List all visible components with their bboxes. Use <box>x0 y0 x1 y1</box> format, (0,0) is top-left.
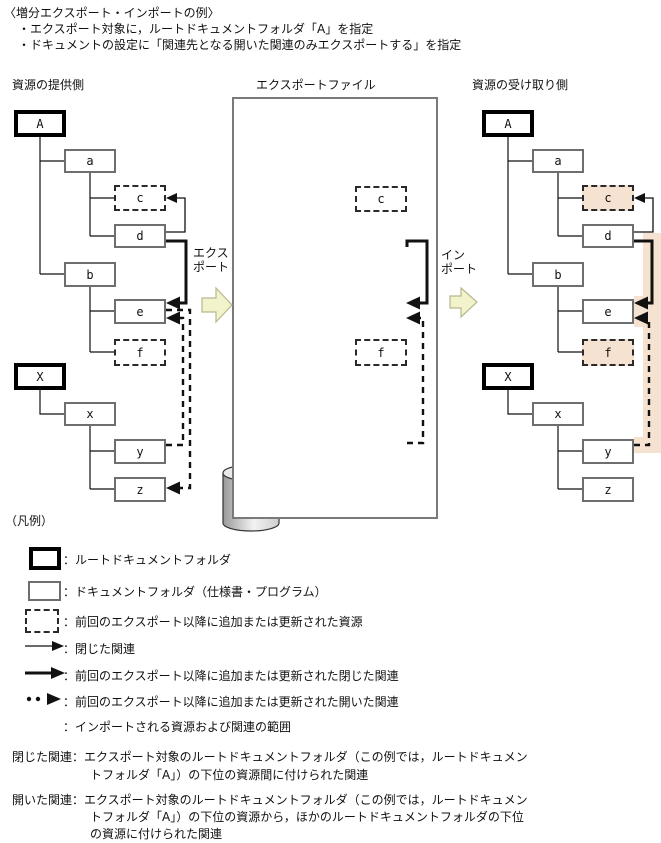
node-provider-z: z <box>114 477 166 502</box>
provider-new-open-relation-e-z <box>166 310 190 495</box>
provider-new-closed-relation-d-e <box>166 241 186 310</box>
closed-relation-note-line: トフォルダ「A」）の下位の資源間に付けられた関連 <box>90 766 368 783</box>
node-provider-e: e <box>114 299 166 324</box>
open-relation-note-line: の資源に付けられた関連 <box>90 825 222 842</box>
node-receiver-x: x <box>532 402 584 426</box>
node-receiver-b: b <box>532 262 584 287</box>
node-provider-c: c <box>114 185 166 211</box>
export-file-box <box>233 98 437 518</box>
provider-connector-b <box>90 287 114 352</box>
node-receiver-d: d <box>582 224 634 248</box>
import-label-line2: ポート <box>441 262 477 276</box>
receiver-connector-X <box>508 390 532 414</box>
legend-added-open-relation-arrow <box>24 691 66 707</box>
node-provider-a: a <box>64 149 116 173</box>
provider-new-open-relation-y-e <box>166 312 183 446</box>
node-provider-b: b <box>64 262 116 287</box>
provider-connector-x <box>90 426 114 489</box>
legend-import-scope-swatch <box>28 714 49 735</box>
node-provider-y: y <box>114 439 166 464</box>
legend-added-updated-resource-box <box>25 609 59 633</box>
receiver-connector-b <box>558 287 582 352</box>
legend-heading: （凡例） <box>5 514 53 529</box>
export-label-line1: エクス <box>193 246 229 260</box>
open-relation-note-term: 開いた関連： <box>12 791 84 808</box>
node-receiver-c: c <box>582 185 634 211</box>
legend-item-label: ：前回のエクスポート以降に追加または更新された資源 <box>63 613 363 630</box>
provider-connector-X <box>40 390 64 414</box>
legend-root-folder-box <box>29 547 61 570</box>
node-provider-X: X <box>14 363 66 390</box>
node-provider-x: x <box>64 402 116 426</box>
open-relation-note-line: トフォルダ「A」）の下位の資源から，ほかのルートドキュメントフォルダの下位 <box>90 808 524 825</box>
figure-canvas: 〈増分エクスポート・インポートの例〉 ・エクスポート対象に，ルートドキュメントフ… <box>0 0 661 843</box>
node-receiver-X: X <box>482 363 534 390</box>
node-receiver-y: y <box>582 439 634 464</box>
node-receiver-A: A <box>482 110 534 137</box>
legend-item-label: ：前回のエクスポート以降に追加または更新された開いた関連 <box>63 693 399 710</box>
node-receiver-a: a <box>532 149 584 173</box>
legend-item-label: ：前回のエクスポート以降に追加または更新された閉じた関連 <box>63 667 399 684</box>
node-provider-A: A <box>14 110 66 137</box>
node-exportfile-f: f <box>355 339 407 366</box>
node-provider-f: f <box>114 339 166 366</box>
node-exportfile-c: c <box>355 186 407 212</box>
node-receiver-z: z <box>582 477 634 502</box>
open-relation-note-line: エクスポート対象のルートドキュメントフォルダ（この例では，ルートドキュメン <box>84 791 528 808</box>
receiver-connector-A <box>508 136 532 274</box>
receiver-closed-relation-d-c <box>634 193 653 232</box>
closed-relation-note-line: エクスポート対象のルートドキュメントフォルダ（この例では，ルートドキュメン <box>84 748 528 765</box>
legend-item-label: ：ルートドキュメントフォルダ <box>63 551 231 568</box>
provider-connector-a <box>90 173 114 236</box>
node-provider-d: d <box>114 224 166 248</box>
provider-connector-A <box>40 136 64 274</box>
export-flow-arrow <box>202 288 232 322</box>
receiver-connector-x <box>558 426 582 489</box>
receiver-connector-a <box>558 173 582 236</box>
legend-item-label: ：インポートされる資源および関連の範囲 <box>63 718 291 735</box>
import-flow-arrow <box>450 288 477 317</box>
legend-closed-relation-arrow <box>24 639 64 653</box>
legend-item-label: ：閉じた関連 <box>63 640 135 657</box>
legend-document-folder-box <box>28 581 61 601</box>
legend-added-closed-relation-arrow <box>24 665 66 681</box>
import-label-line1: イン <box>441 248 465 262</box>
node-receiver-f: f <box>582 339 634 366</box>
export-label-line2: ポート <box>193 260 229 274</box>
closed-relation-note-term: 閉じた関連： <box>12 748 84 765</box>
legend-item-label: ：ドキュメントフォルダ（仕様書・プログラム） <box>63 583 327 600</box>
provider-closed-relation-d-c <box>166 193 185 232</box>
node-receiver-e: e <box>582 299 634 324</box>
